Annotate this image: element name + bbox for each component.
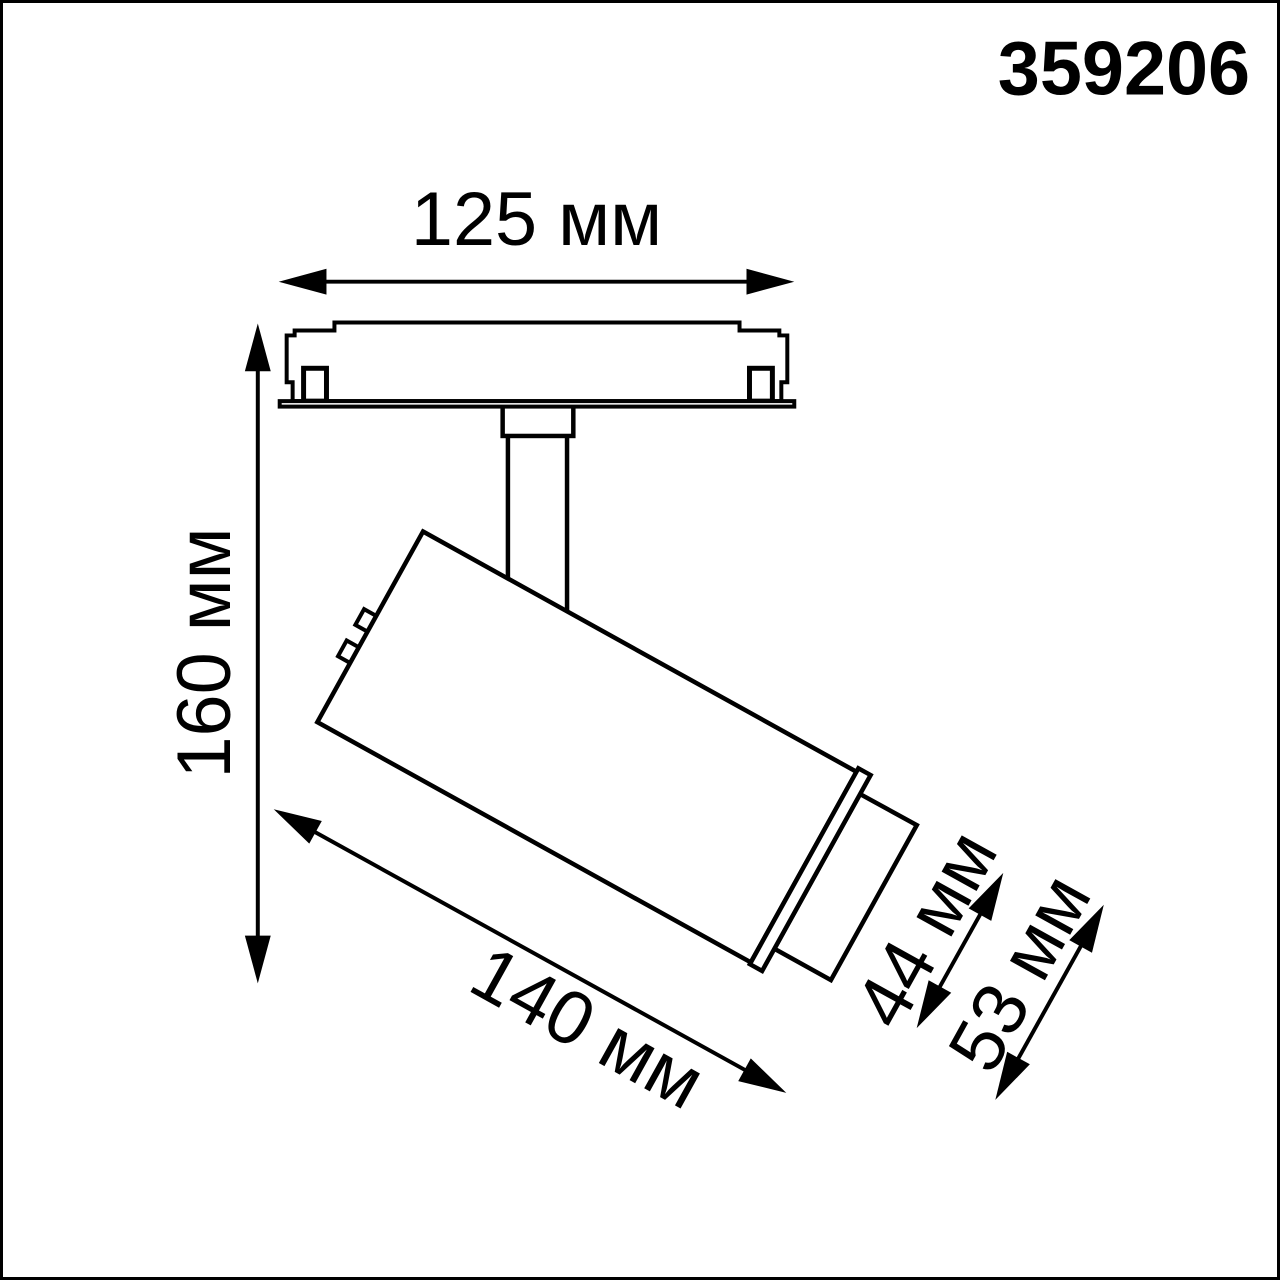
- arrowhead-bottom: [245, 936, 271, 984]
- arrowhead-top: [245, 323, 271, 371]
- lamp-body-group: [317, 532, 916, 981]
- track-adapter-outline: [287, 322, 788, 401]
- dimension-label-body-length: 140 мм: [457, 931, 717, 1126]
- arrowhead-right: [746, 269, 794, 295]
- stem-collar: [503, 404, 574, 436]
- arrowhead-left: [279, 269, 327, 295]
- track-adapter: [280, 322, 795, 406]
- technical-drawing: 125 мм 160 мм 140 мм 44 мм 5: [3, 3, 1277, 1277]
- dimension-label-track-width: 125 мм: [411, 178, 662, 262]
- arrowhead-lower-right: [738, 1058, 786, 1092]
- product-code: 359206: [998, 28, 1250, 112]
- lamp-body: [317, 532, 856, 963]
- dimension-overall-height: 160 мм: [163, 323, 271, 983]
- adapter-base-plate: [280, 401, 795, 406]
- adapter-contact-left: [304, 368, 327, 401]
- dimension-track-width: 125 мм: [279, 178, 795, 295]
- diagram-page: 125 мм 160 мм 140 мм 44 мм 5: [0, 0, 1280, 1280]
- dimension-label-overall-height: 160 мм: [163, 527, 247, 778]
- arrowhead-upper-left: [274, 809, 322, 843]
- adapter-contact-right: [749, 368, 772, 401]
